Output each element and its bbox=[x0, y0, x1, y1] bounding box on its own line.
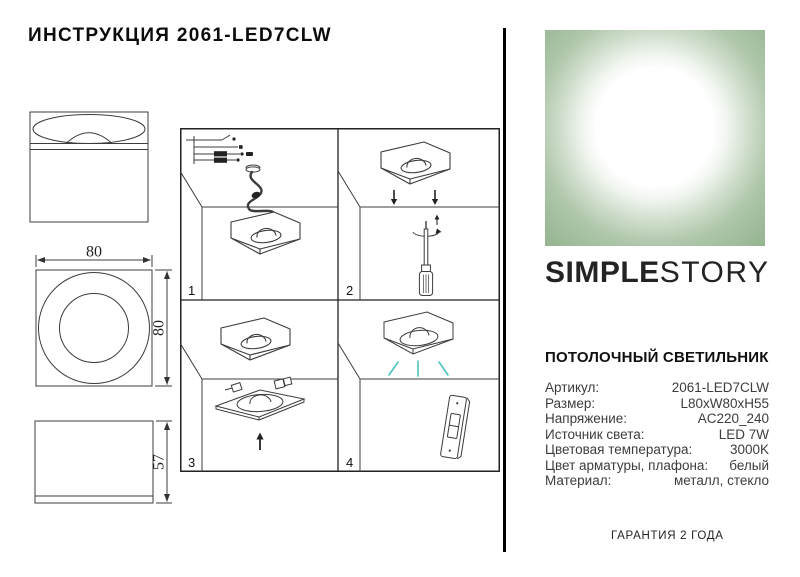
spec-value: LED 7W bbox=[719, 427, 769, 443]
side-view-body bbox=[35, 421, 153, 503]
spec-value: AC220_240 bbox=[698, 411, 769, 427]
spec-value: 3000K bbox=[730, 442, 769, 458]
product-heading: ПОТОЛОЧНЫЙ СВЕТИЛЬНИК bbox=[545, 349, 769, 366]
depth-dimension-label: 57 bbox=[151, 454, 168, 470]
step-3-panel: 3 bbox=[180, 318, 338, 472]
spec-label: Цвет арматуры, плафона: bbox=[545, 458, 708, 474]
up-arrow-head bbox=[256, 433, 263, 440]
spec-row-article: Артикул: 2061-LED7CLW bbox=[545, 380, 769, 396]
step-4-panel: 4 bbox=[338, 312, 500, 472]
spec-label: Материал: bbox=[545, 473, 611, 489]
trim-glass-panel bbox=[216, 377, 304, 420]
spec-label: Напряжение: bbox=[545, 411, 627, 427]
spec-label: Цветовая температура: bbox=[545, 442, 692, 458]
spec-row-light-source: Источник света: LED 7W bbox=[545, 427, 769, 443]
fixture-housing bbox=[231, 212, 300, 254]
spec-row-size: Размер: L80xW80xH55 bbox=[545, 396, 769, 412]
mounted-light bbox=[384, 312, 453, 354]
brand-word-simple: SIMPLE bbox=[545, 256, 660, 290]
side-view-drawing: 57 bbox=[25, 415, 175, 511]
brand-logo: SIMPLE STORY bbox=[545, 256, 765, 290]
page-title: ИНСТРУКЦИЯ 2061-LED7CLW bbox=[28, 25, 332, 47]
brand-word-story: STORY bbox=[660, 256, 770, 290]
warranty-note: ГАРАНТИЯ 2 ГОДА bbox=[611, 530, 724, 542]
spec-row-body-color: Цвет арматуры, плафона: белый bbox=[545, 458, 769, 474]
wiring-diagram bbox=[186, 135, 253, 164]
front-view-drawing bbox=[28, 110, 150, 224]
step-number: 3 bbox=[188, 455, 195, 470]
front-view-body bbox=[30, 112, 148, 222]
screwdriver-icon bbox=[413, 215, 442, 296]
height-dimension-label: 80 bbox=[151, 320, 168, 336]
step-2-panel: 2 bbox=[338, 142, 500, 300]
wall-switch-icon bbox=[440, 395, 470, 459]
spec-value: белый bbox=[729, 458, 769, 474]
spec-value: металл, стекло bbox=[674, 473, 769, 489]
spec-value: 2061-LED7CLW bbox=[672, 380, 769, 396]
step-1-panel: 1 bbox=[180, 135, 338, 300]
spec-row-color-temperature: Цветовая температура: 3000K bbox=[545, 442, 769, 458]
power-cable bbox=[246, 165, 274, 213]
spec-list: Артикул: 2061-LED7CLW Размер: L80xW80xH5… bbox=[545, 380, 769, 489]
bottom-view-square bbox=[36, 270, 152, 386]
installation-steps-diagram: 1 2 bbox=[180, 128, 500, 472]
room-corner-lines bbox=[338, 343, 500, 472]
step-number: 4 bbox=[346, 455, 353, 470]
brand-light-image bbox=[545, 30, 765, 246]
mounting-arrows bbox=[391, 190, 438, 205]
vertical-divider bbox=[503, 28, 506, 552]
step-number: 1 bbox=[188, 283, 195, 298]
fixture-housing bbox=[381, 142, 450, 184]
fixture-housing bbox=[221, 318, 290, 360]
spec-label: Источник света: bbox=[545, 427, 645, 443]
spec-label: Артикул: bbox=[545, 380, 599, 396]
step-number: 2 bbox=[346, 283, 353, 298]
spec-row-voltage: Напряжение: AC220_240 bbox=[545, 411, 769, 427]
spec-value: L80xW80xH55 bbox=[680, 396, 769, 412]
spec-label: Размер: bbox=[545, 396, 595, 412]
light-rays bbox=[389, 361, 448, 376]
bottom-view-drawing: 80 80 bbox=[25, 243, 180, 395]
width-dimension-label: 80 bbox=[86, 244, 102, 261]
spec-row-material: Материал: металл, стекло bbox=[545, 473, 769, 489]
